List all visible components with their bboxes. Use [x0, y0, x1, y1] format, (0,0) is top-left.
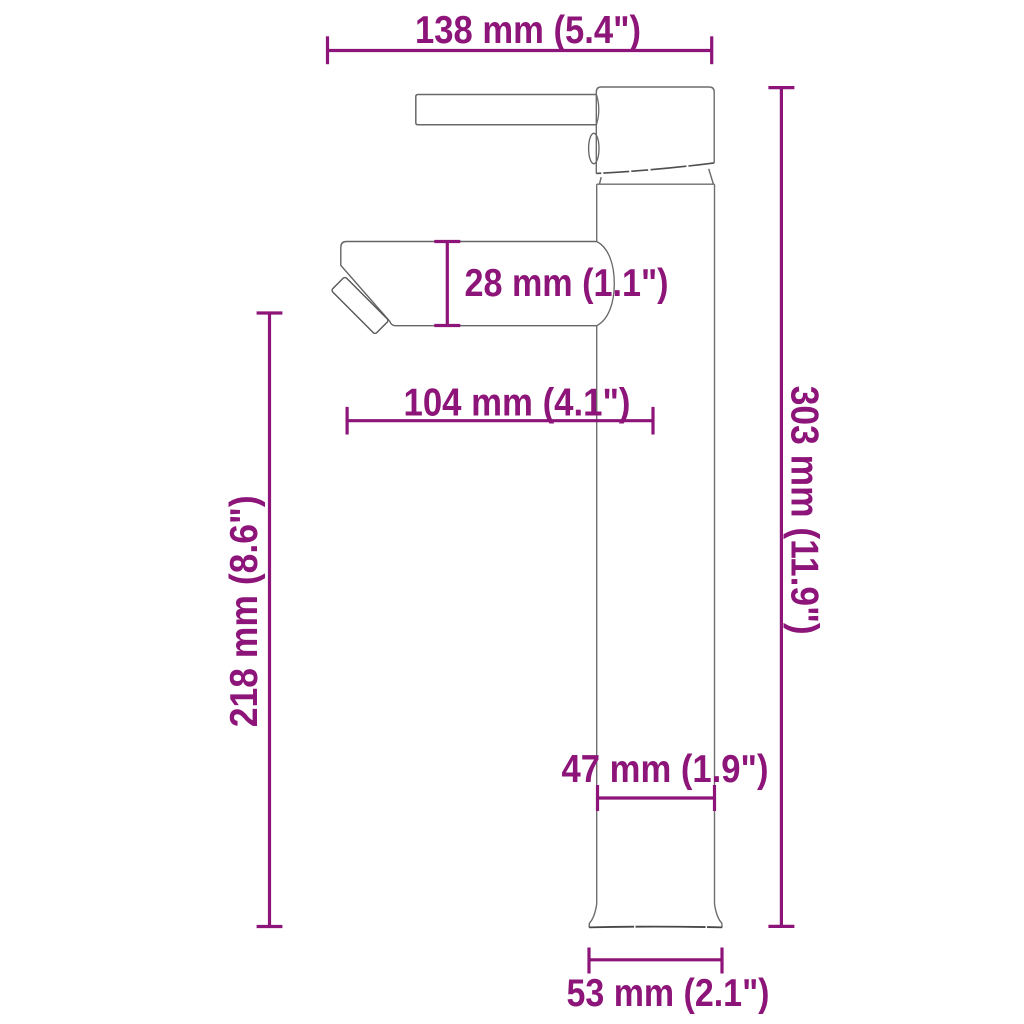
- svg-text:47 mm (1.9"): 47 mm (1.9"): [562, 748, 769, 791]
- svg-text:218 mm (8.6"): 218 mm (8.6"): [223, 495, 266, 727]
- svg-text:53 mm (2.1"): 53 mm (2.1"): [567, 972, 770, 1015]
- svg-text:303 mm (11.9"): 303 mm (11.9"): [783, 386, 826, 635]
- svg-text:138 mm (5.4"): 138 mm (5.4"): [415, 9, 641, 52]
- svg-text:104 mm (4.1"): 104 mm (4.1"): [404, 381, 631, 424]
- svg-text:28 mm (1.1"): 28 mm (1.1"): [465, 262, 669, 305]
